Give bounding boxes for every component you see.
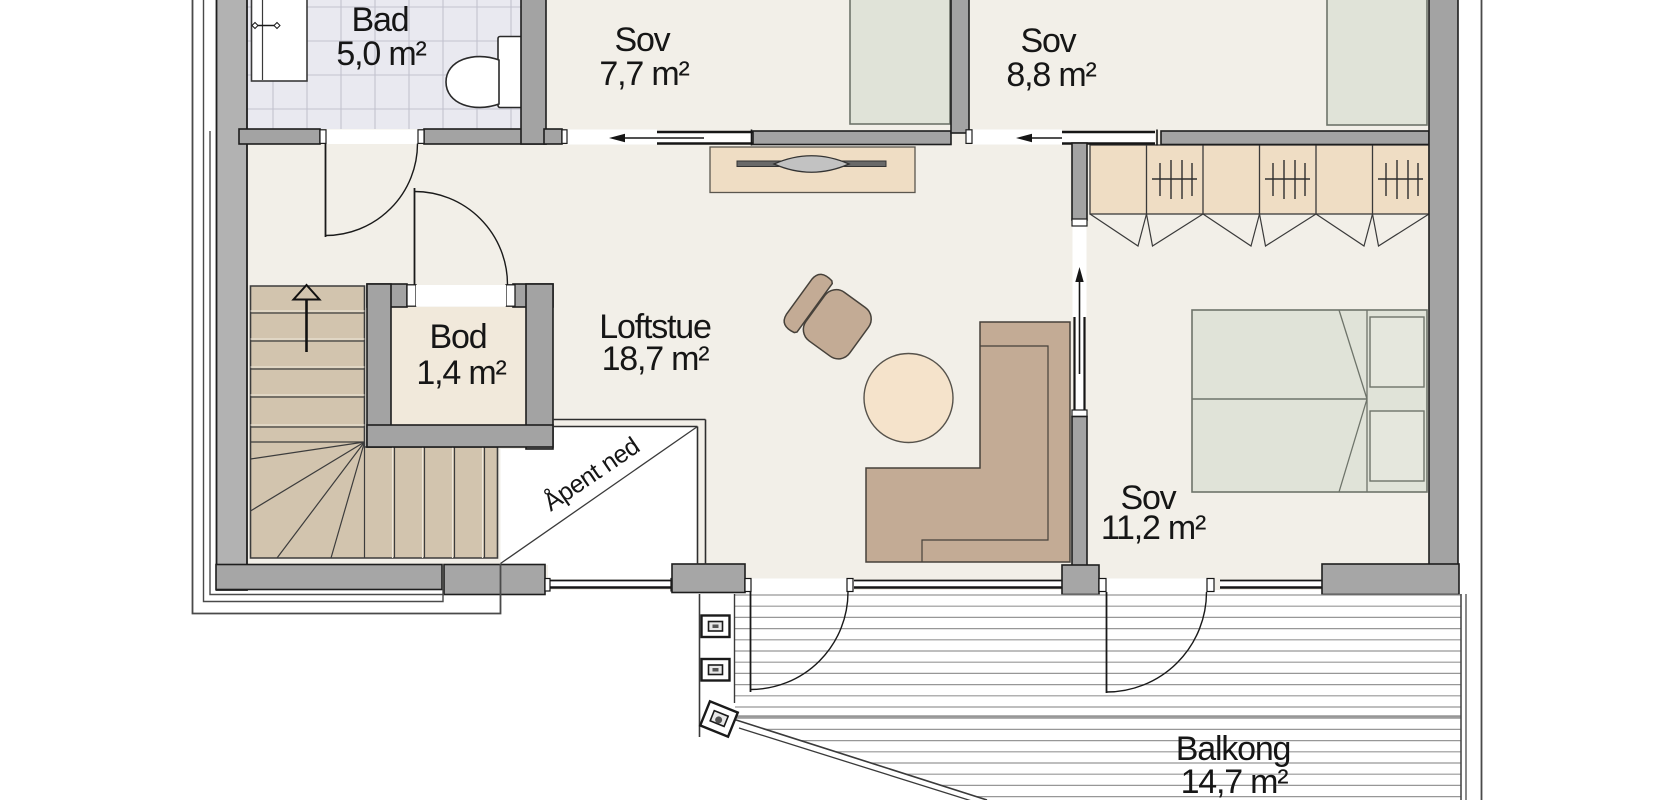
svg-text:1,4 m²: 1,4 m² bbox=[416, 354, 506, 392]
svg-text:Bad: Bad bbox=[352, 1, 409, 39]
svg-text:7,7 m²: 7,7 m² bbox=[599, 55, 689, 93]
svg-text:11,2 m²: 11,2 m² bbox=[1101, 509, 1206, 547]
svg-text:Sov: Sov bbox=[1021, 22, 1077, 60]
svg-text:14,7 m²: 14,7 m² bbox=[1181, 763, 1289, 800]
svg-text:8,8 m²: 8,8 m² bbox=[1006, 56, 1096, 94]
svg-text:5,0 m²: 5,0 m² bbox=[336, 35, 426, 73]
svg-text:Bod: Bod bbox=[430, 318, 487, 356]
svg-text:18,7 m²: 18,7 m² bbox=[602, 340, 710, 378]
svg-text:Sov: Sov bbox=[615, 21, 671, 59]
